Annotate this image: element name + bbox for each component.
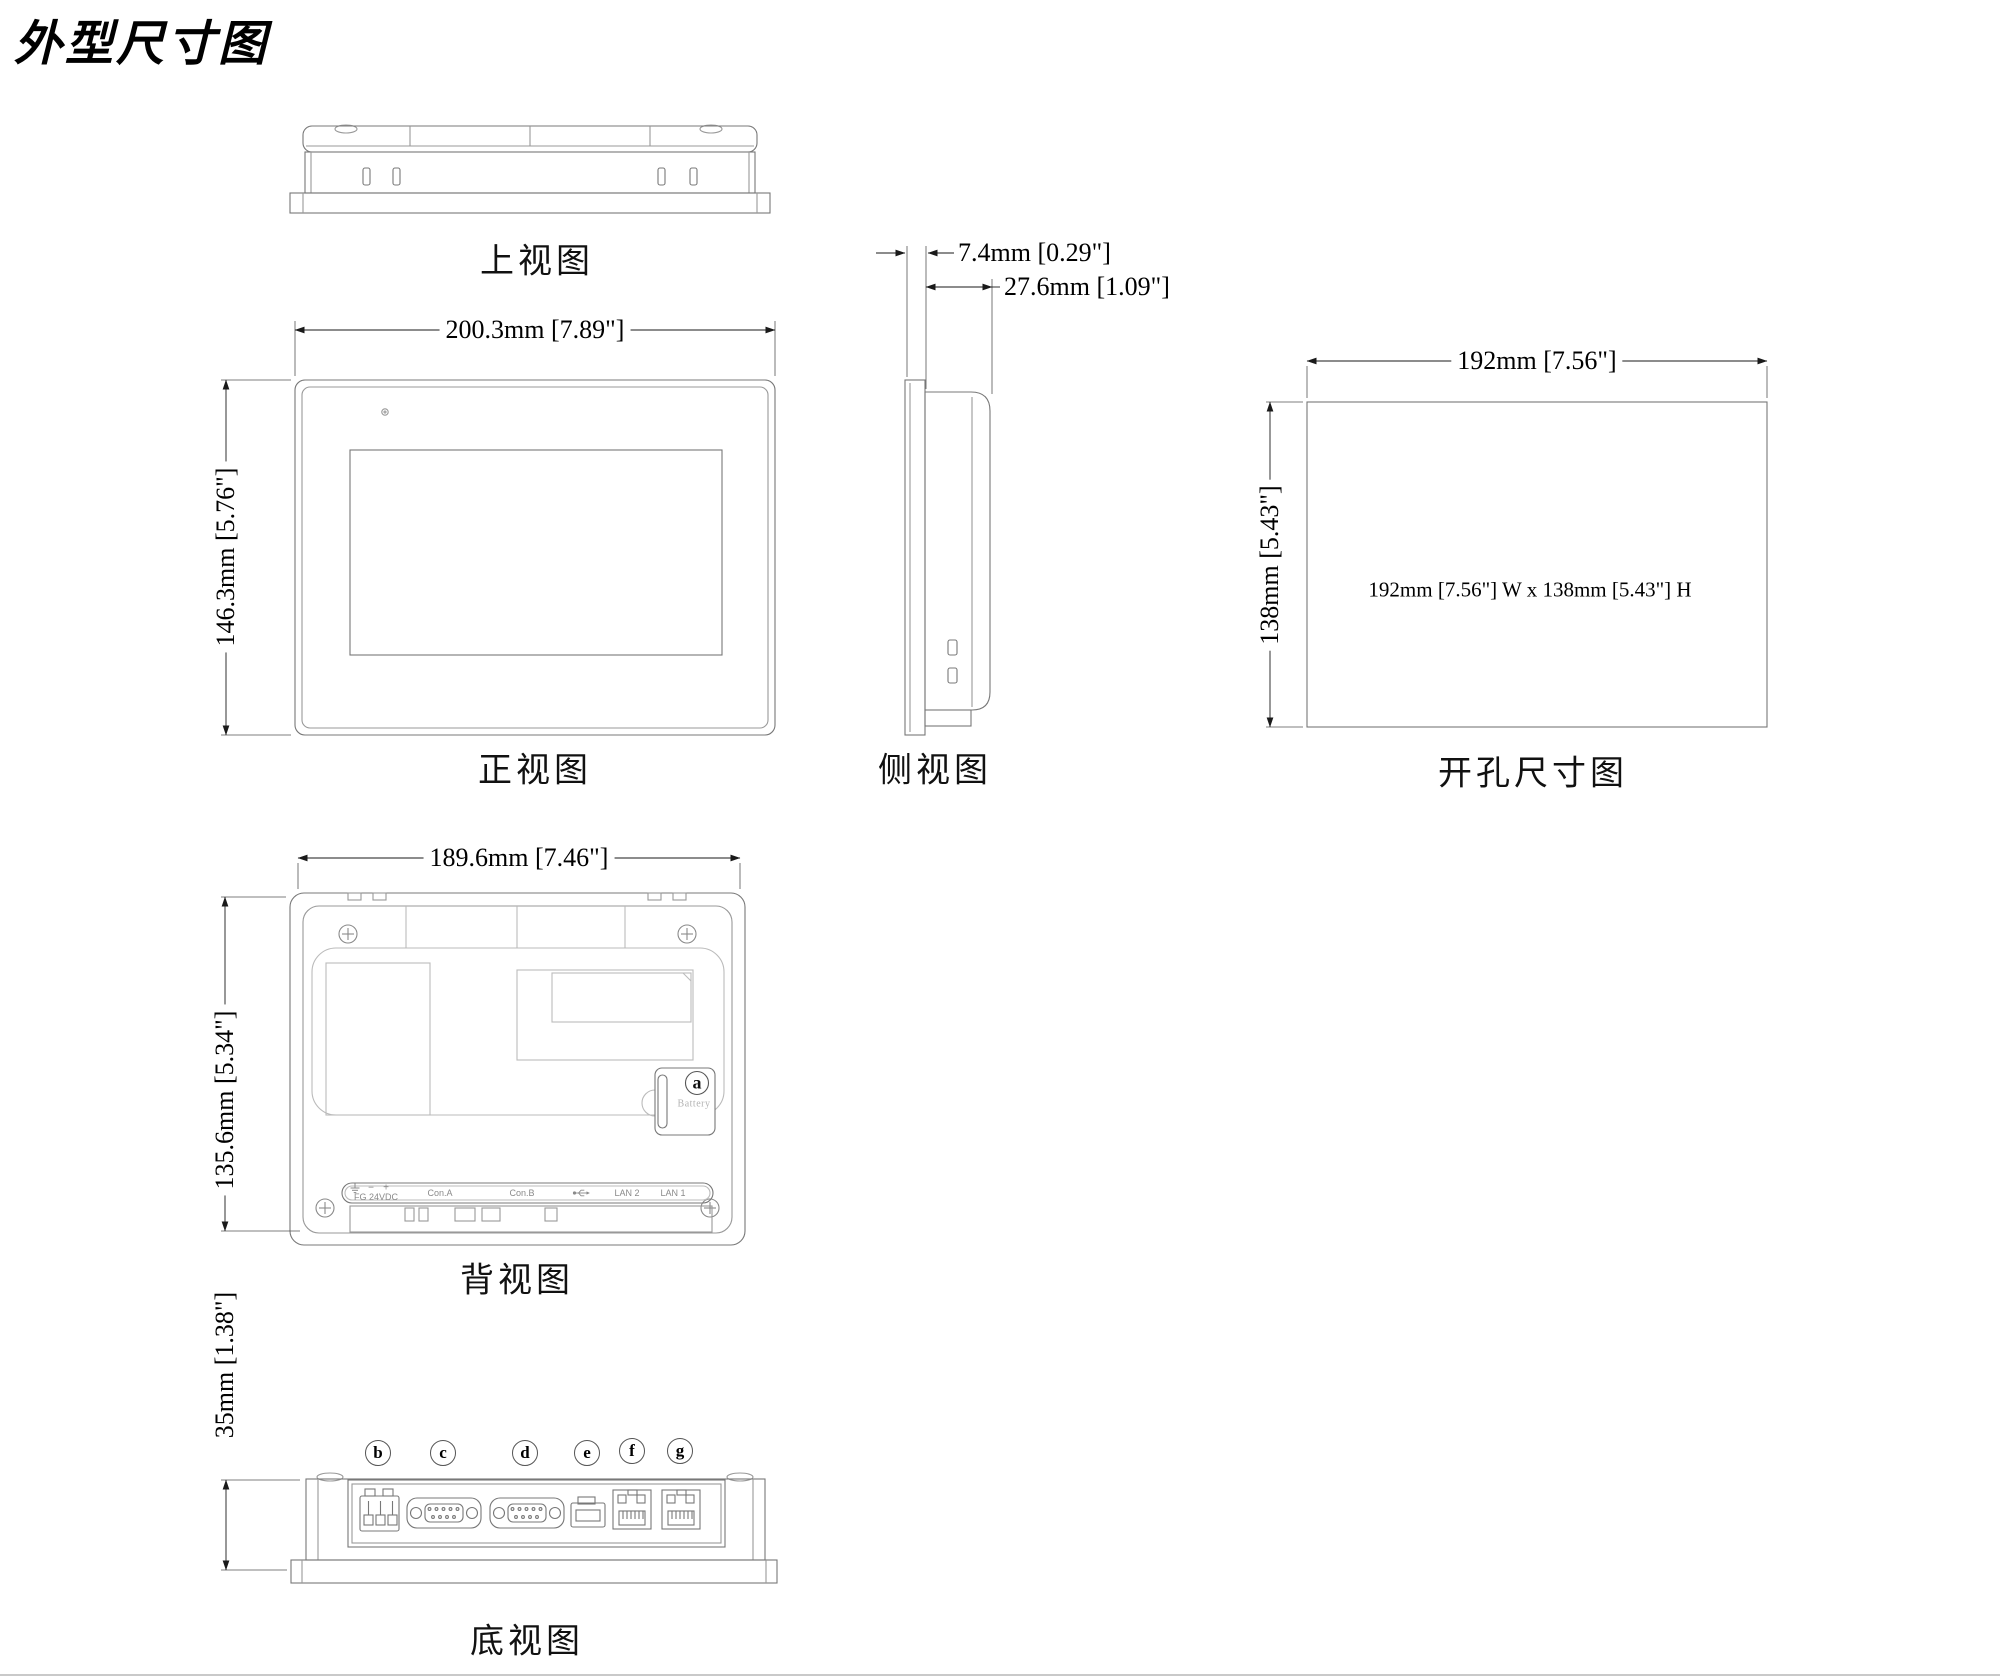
cutout-height-dimension: 138mm [5.43"] <box>1255 479 1285 650</box>
bottom-view-drawing <box>291 1473 777 1583</box>
callout-b: b <box>365 1440 391 1466</box>
battery-label: Battery <box>678 1099 711 1110</box>
front-width-dimension: 200.3mm [7.89"] <box>440 315 631 345</box>
callout-g: g <box>667 1438 693 1464</box>
power-terminal-drawing <box>360 1489 399 1531</box>
port-label-power: FG 24VDC <box>354 1192 398 1202</box>
cutout-view-dimension-lines <box>1266 361 1767 727</box>
top-view-label: 上视图 <box>480 234 594 283</box>
page-title: 外型尺寸图 <box>14 4 269 74</box>
front-height-dimension: 146.3mm [5.76"] <box>211 462 241 653</box>
usb-icon <box>573 1190 590 1196</box>
usb-port-drawing <box>571 1497 605 1527</box>
screw-icon <box>678 925 696 943</box>
front-view-dimension-lines <box>221 321 775 735</box>
front-view-drawing <box>295 380 775 735</box>
side-view-label: 侧视图 <box>878 743 992 792</box>
side-view-drawing <box>905 380 990 735</box>
cutout-view-label: 开孔尺寸图 <box>1438 746 1628 795</box>
screw-icon <box>316 1199 334 1217</box>
back-height-dimension: 135.6mm [5.34"] <box>210 1005 240 1196</box>
front-view-label: 正视图 <box>478 743 592 792</box>
battery-callout: a <box>693 1073 702 1094</box>
db9-connector-drawing <box>407 1498 481 1528</box>
port-label-lan2: LAN 2 <box>614 1188 639 1198</box>
screw-icon <box>701 1199 719 1217</box>
port-label-con-b: Con.B <box>509 1188 534 1198</box>
back-width-dimension: 189.6mm [7.46"] <box>424 843 615 873</box>
back-view-label: 背视图 <box>460 1253 574 1302</box>
bottom-view-dimension-lines <box>221 1480 300 1570</box>
callout-d: d <box>512 1440 538 1466</box>
callout-c: c <box>430 1440 456 1466</box>
screw-icon <box>339 925 357 943</box>
back-view-dimension-lines <box>221 858 740 1231</box>
callout-e: e <box>574 1440 600 1466</box>
outline-dimension-drawing: 外型尺寸图 上视图 正视图 侧视图 开孔尺寸图 背视图 底视图 200.3mm … <box>0 0 2000 1676</box>
side-bezel-dimension: 7.4mm [0.29"] <box>958 238 1111 268</box>
port-label-con-a: Con.A <box>427 1188 452 1198</box>
rj45-port-drawing <box>613 1490 651 1529</box>
top-view-drawing <box>290 125 770 213</box>
cutout-width-dimension: 192mm [7.56"] <box>1451 346 1622 376</box>
side-depth-dimension: 27.6mm [1.09"] <box>1004 272 1170 302</box>
cutout-size-note: 192mm [7.56"] W x 138mm [5.43"] H <box>1368 578 1691 603</box>
db9-connector-drawing <box>490 1498 564 1528</box>
bottom-height-dimension: 35mm [1.38"] <box>210 1286 240 1444</box>
port-label-lan1: LAN 1 <box>660 1188 685 1198</box>
callout-f: f <box>619 1438 645 1464</box>
rj45-port-drawing <box>662 1490 700 1529</box>
bottom-view-label: 底视图 <box>470 1614 584 1663</box>
cutout-view-drawing <box>1307 402 1767 727</box>
side-view-dimension-lines <box>876 246 1000 394</box>
